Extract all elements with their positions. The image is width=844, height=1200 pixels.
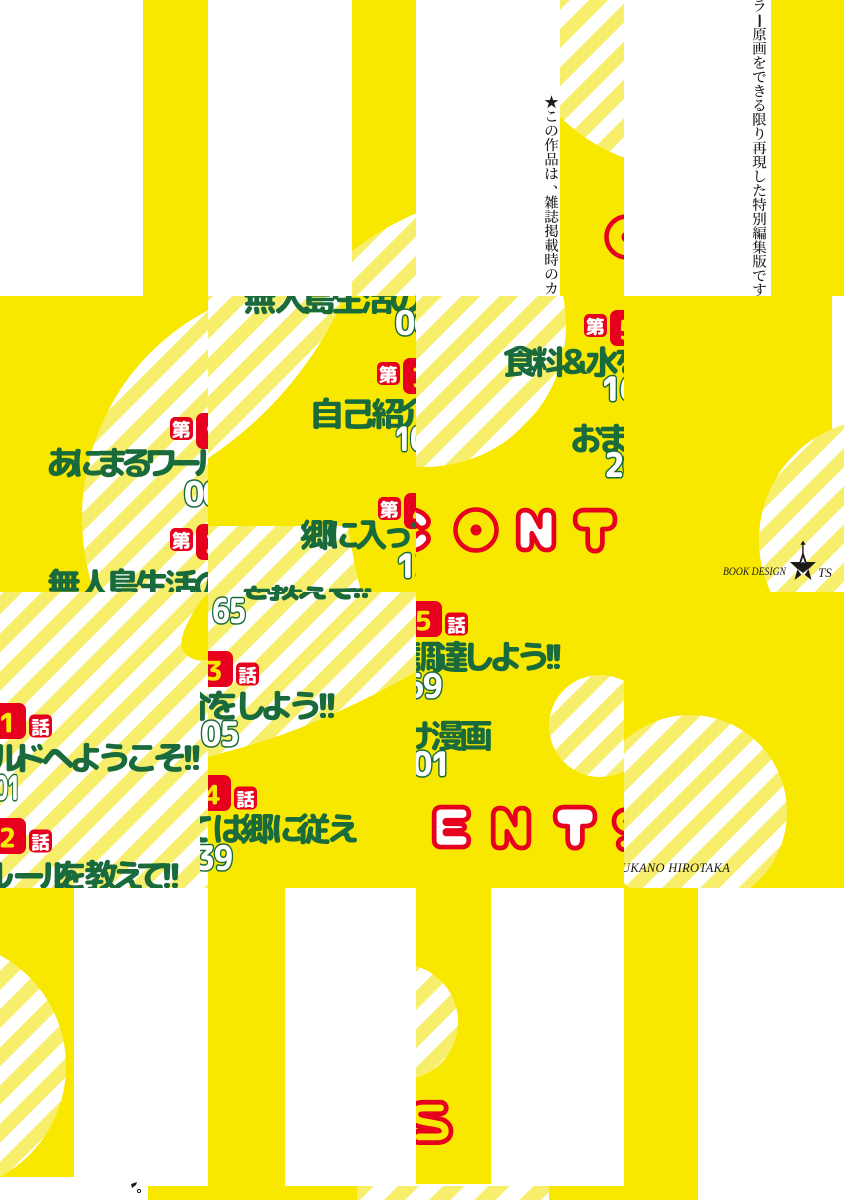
svg-text:TS: TS	[818, 565, 832, 580]
svg-text:BOOK DESIGN: BOOK DESIGN	[723, 566, 787, 578]
svg-text:UKANO HIROTAKA: UKANO HIROTAKA	[621, 861, 730, 875]
